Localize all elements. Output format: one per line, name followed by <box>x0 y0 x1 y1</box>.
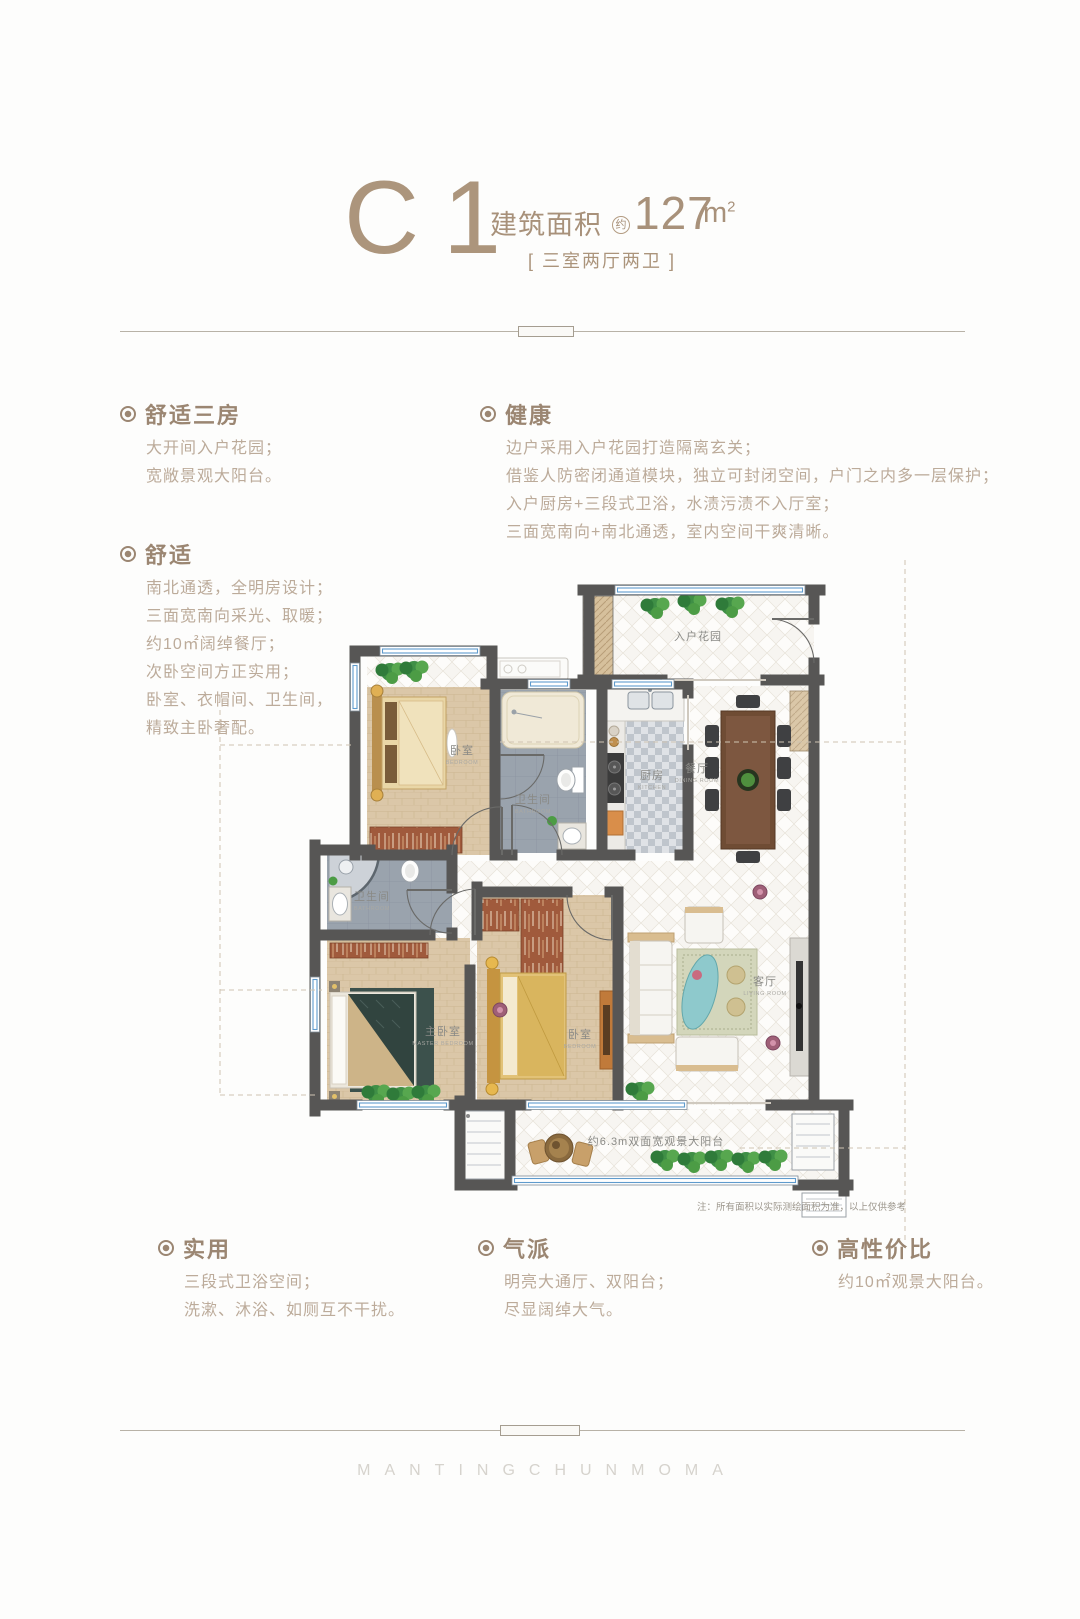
label-living-en: LIVING ROOM <box>743 991 786 997</box>
label-bathroom-master-en: BATHROOM <box>354 906 390 912</box>
feature-grand: 气派 明亮大通厅、双阳台； 尽显阔绰大气。 <box>478 1232 674 1325</box>
label-entry-garden: 入户花园 <box>674 629 722 643</box>
bullet-icon <box>158 1240 174 1256</box>
feature-line: 约10㎡观景大阳台。 <box>838 1269 994 1297</box>
label-kitchen-en: KITCHEN <box>638 785 666 791</box>
feature-line: 洗漱、沐浴、如厕互不干扰。 <box>184 1297 405 1325</box>
approx-badge: 约 <box>612 216 630 234</box>
feature-line: 宽敞景观大阳台。 <box>146 463 282 491</box>
label-living: 客厅 <box>753 974 777 988</box>
feature-practical: 实用 三段式卫浴空间； 洗漱、沐浴、如厕互不干扰。 <box>158 1232 405 1325</box>
label-dining: 餐厅 <box>685 761 709 775</box>
feature-line: 三段式卫浴空间； <box>184 1269 405 1297</box>
bullet-icon <box>120 546 136 562</box>
unit-exponent: 2 <box>727 198 735 215</box>
feature-line: 三面宽南向+南北通透，室内空间干爽清晰。 <box>506 519 999 547</box>
closet-south-a <box>481 899 519 931</box>
label-bathroom-master: 卫生间 <box>354 889 390 903</box>
toilet-north <box>557 767 584 793</box>
bottom-divider-box <box>500 1425 580 1436</box>
floorplan: 入户花园 卧室 BEDROOM 卫生间 BATHROOM 厨房 KITCHEN … <box>200 545 915 1245</box>
layout-tag: [ 三室两厅两卫 ] <box>528 247 676 273</box>
feature-line: 边户采用入户花园打造隔离玄关； <box>506 435 999 463</box>
label-bathroom-north: 卫生间 <box>515 792 551 806</box>
label-kitchen: 厨房 <box>640 769 664 782</box>
area-value: 127 <box>634 186 714 240</box>
top-divider-box <box>518 326 574 337</box>
feature-title: 舒适三房 <box>145 398 241 430</box>
label-bedroom-south-en: BEDROOM <box>564 1044 597 1050</box>
area-unit: m2 <box>703 197 736 230</box>
label-balcony: 约6.3m双面宽观景大阳台 <box>588 1134 724 1148</box>
unit-letter: m <box>703 197 727 229</box>
feature-title: 健康 <box>505 398 553 430</box>
ac-platform-left <box>463 1111 505 1179</box>
area-label: 建筑面积 <box>490 203 602 242</box>
feature-title: 舒适 <box>145 538 193 570</box>
label-bedroom-north-en: BEDROOM <box>446 760 479 766</box>
feature-line: 尽显阔绰大气。 <box>504 1297 674 1325</box>
label-bathroom-north-en: BATHROOM <box>515 809 551 815</box>
bathtub <box>502 692 584 748</box>
feature-line: 大开间入户花园； <box>146 435 282 463</box>
bed-north <box>371 685 457 801</box>
bullet-icon <box>480 406 496 422</box>
feature-health: 健康 边户采用入户花园打造隔离玄关； 借鉴人防密闭通道模块，独立可封闭空间，户门… <box>480 398 999 547</box>
floorplan-note: 注：所有面积以实际测绘面积为准，以上仅供参考 <box>697 1201 906 1213</box>
closet-south-b <box>521 899 563 973</box>
bullet-icon <box>120 406 136 422</box>
label-bedroom-south: 卧室 <box>568 1027 592 1041</box>
feature-line: 明亮大通厅、双阳台； <box>504 1269 674 1297</box>
watermark: MANTINGCHUNMOMA <box>343 1462 737 1480</box>
ac-platform-right <box>792 1114 834 1170</box>
feature-line: 借鉴人防密闭通道模块，独立可封闭空间，户门之内多一层保护； <box>506 463 999 491</box>
tv-cabinet <box>790 938 810 1076</box>
label-dining-en: DINING ROOM <box>675 778 720 784</box>
label-master-bedroom-en: MASTER BEDROOM <box>412 1041 473 1047</box>
closet-master <box>330 943 428 958</box>
feature-line: 入户厨房+三段式卫浴，水渍污渍不入厅室； <box>506 491 999 519</box>
label-bedroom-north: 卧室 <box>450 743 474 757</box>
laundry-niche <box>492 658 568 680</box>
label-master-bedroom: 主卧室 <box>425 1024 461 1038</box>
feature-comfort3: 舒适三房 大开间入户花园； 宽敞景观大阳台。 <box>120 398 282 491</box>
